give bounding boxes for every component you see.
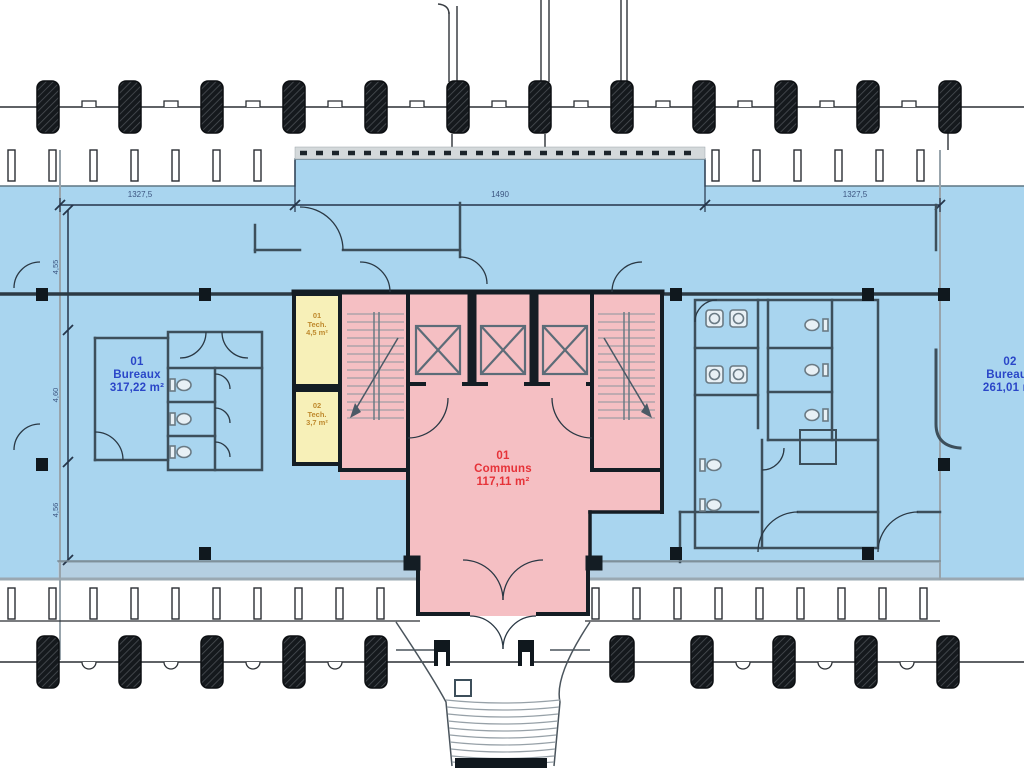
- floor-plan: 01 Bureaux 317,22 m² 02 Bureaux 261,01 m…: [0, 0, 1024, 768]
- entrance-steps: [446, 700, 560, 764]
- bottom-column-row: [0, 636, 1024, 688]
- dimension-left-lower: 4,56: [51, 490, 61, 530]
- room-label-bureaux-right: 02 Bureaux 261,01 m²: [950, 356, 1024, 395]
- door-arc: [470, 616, 503, 649]
- room-area: 117,11 m²: [438, 476, 568, 489]
- sink-icon: [706, 366, 723, 383]
- tech-room-1: [294, 294, 340, 386]
- vestibule: [418, 560, 588, 616]
- room-id: 01: [438, 450, 568, 463]
- dimension-top-right: 1327,5: [820, 190, 890, 200]
- room-id: 02: [950, 356, 1024, 369]
- wc-icon: [805, 319, 828, 331]
- room-label-tech-2: 02 Tech. 3,7 m²: [292, 402, 342, 428]
- entrance: [396, 622, 590, 768]
- wc-icon: [700, 459, 721, 471]
- room-area: 317,22 m²: [82, 382, 192, 395]
- sink-icon: [730, 310, 747, 327]
- wc-icon: [805, 364, 828, 376]
- wc-icon: [170, 446, 191, 458]
- room-id: 01: [82, 356, 192, 369]
- wc-icon: [700, 499, 721, 511]
- dimension-top-left: 1327,5: [105, 190, 175, 200]
- dimension-top-center: 1490: [465, 190, 535, 200]
- dimension-left-upper: 4,55: [51, 247, 61, 287]
- wc-icon: [170, 413, 191, 425]
- dimension-left-middle: 4,60: [51, 375, 61, 415]
- room-area: 4,5 m²: [292, 329, 342, 338]
- room-area: 3,7 m²: [292, 419, 342, 428]
- room-name: Bureaux: [950, 369, 1024, 382]
- sink-icon: [706, 310, 723, 327]
- room-name: Bureaux: [82, 369, 192, 382]
- room-name: Communs: [438, 463, 568, 476]
- wc-icon: [805, 409, 828, 421]
- room-label-bureaux-left: 01 Bureaux 317,22 m²: [82, 356, 192, 395]
- room-label-tech-1: 01 Tech. 4,5 m²: [292, 312, 342, 338]
- room-area: 261,01 m²: [950, 382, 1024, 395]
- room-label-communs: 01 Communs 117,11 m²: [438, 450, 568, 489]
- sink-icon: [730, 366, 747, 383]
- top-column-row: [0, 81, 1024, 133]
